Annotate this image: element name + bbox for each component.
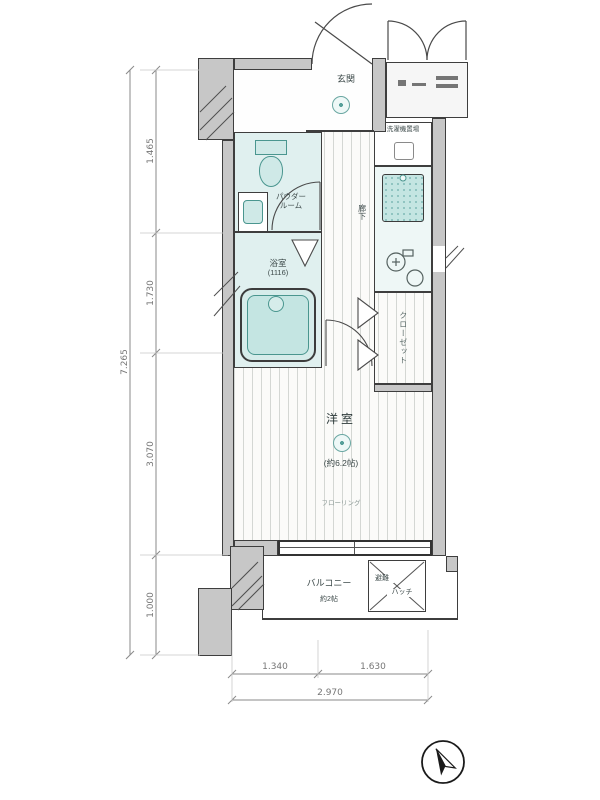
wall-left — [222, 140, 234, 556]
meter-box-doors-icon — [388, 21, 466, 60]
entrance-light-icon — [332, 96, 350, 114]
kitchen-sink — [382, 174, 424, 222]
meter-symbol-3 — [436, 76, 458, 80]
room-window-mid-rail — [280, 547, 430, 548]
wall-bottom-left-block — [198, 588, 232, 656]
balcony-size-label: 約2帖 — [305, 596, 353, 604]
entrance-door-swing-icon — [312, 4, 372, 64]
bath-faucet — [268, 296, 284, 312]
dim-bottom-seg-1: 1.340 — [262, 662, 288, 672]
hallway-label: 廊下 — [357, 204, 367, 220]
dim-bottom-seg-2: 1.630 — [360, 662, 386, 672]
floor-plan: 1.465 1.730 3.070 1.000 7.265 1.340 1.63… — [0, 0, 600, 800]
wall-entrance-column — [372, 58, 386, 132]
room-window — [278, 540, 432, 556]
bathroom-label: 浴室 (1116) — [242, 258, 314, 277]
room-floor-label: フローリング — [313, 500, 369, 508]
powder-room-label-line1: パウダー — [264, 192, 318, 201]
hatch-label-line2: ハッチ — [387, 589, 417, 597]
powder-room-label-line2: ルーム — [264, 201, 318, 210]
room-window-center-sash — [354, 542, 355, 554]
closet-label: クローゼット — [374, 292, 432, 384]
hatch-label-line1: 避難 — [370, 575, 394, 583]
meter-box — [386, 62, 468, 118]
vanity-sink — [243, 200, 263, 224]
bathroom-label-size: (1116) — [242, 268, 314, 277]
dim-left-seg-3: 3.070 — [146, 441, 156, 467]
wall-right — [432, 118, 446, 556]
toilet-bowl — [259, 156, 283, 187]
meter-symbol-4 — [436, 84, 458, 88]
washing-machine-pan — [394, 142, 414, 160]
meter-symbol-2 — [412, 83, 426, 86]
balcony-label: バルコニー — [293, 578, 365, 589]
entrance-step-line — [306, 130, 374, 132]
dim-left-total: 7.265 — [120, 349, 130, 375]
dim-left-seg-4: 1.000 — [146, 592, 156, 618]
dim-bottom-total: 2.970 — [317, 688, 343, 698]
compass-north-icon — [422, 741, 464, 783]
dim-left-seg-2: 1.730 — [146, 280, 156, 306]
washing-machine-label: 洗濯機置場 — [375, 126, 431, 134]
meter-symbol-1 — [398, 80, 406, 86]
toilet-tank — [255, 140, 287, 155]
wall-top — [234, 58, 312, 70]
wall-balcony-right-stub — [446, 556, 458, 572]
room-light-icon — [333, 434, 351, 452]
dim-left-seg-1: 1.465 — [146, 138, 156, 164]
entrance-label: 玄関 — [324, 74, 368, 85]
right-wall-vent-gap — [433, 246, 445, 272]
room-size-label: (約6.2帖) — [307, 458, 375, 468]
wall-top-left-block — [198, 58, 234, 140]
closet-label-text: クローゼット — [398, 311, 408, 365]
powder-room-label: パウダー ルーム — [264, 192, 318, 210]
evacuation-hatch — [368, 560, 426, 612]
bathroom-label-name: 浴室 — [242, 258, 314, 268]
room-label: 洋室 — [311, 412, 371, 426]
wall-closet-bottom — [374, 384, 432, 392]
balcony-divider-wall — [230, 546, 264, 610]
